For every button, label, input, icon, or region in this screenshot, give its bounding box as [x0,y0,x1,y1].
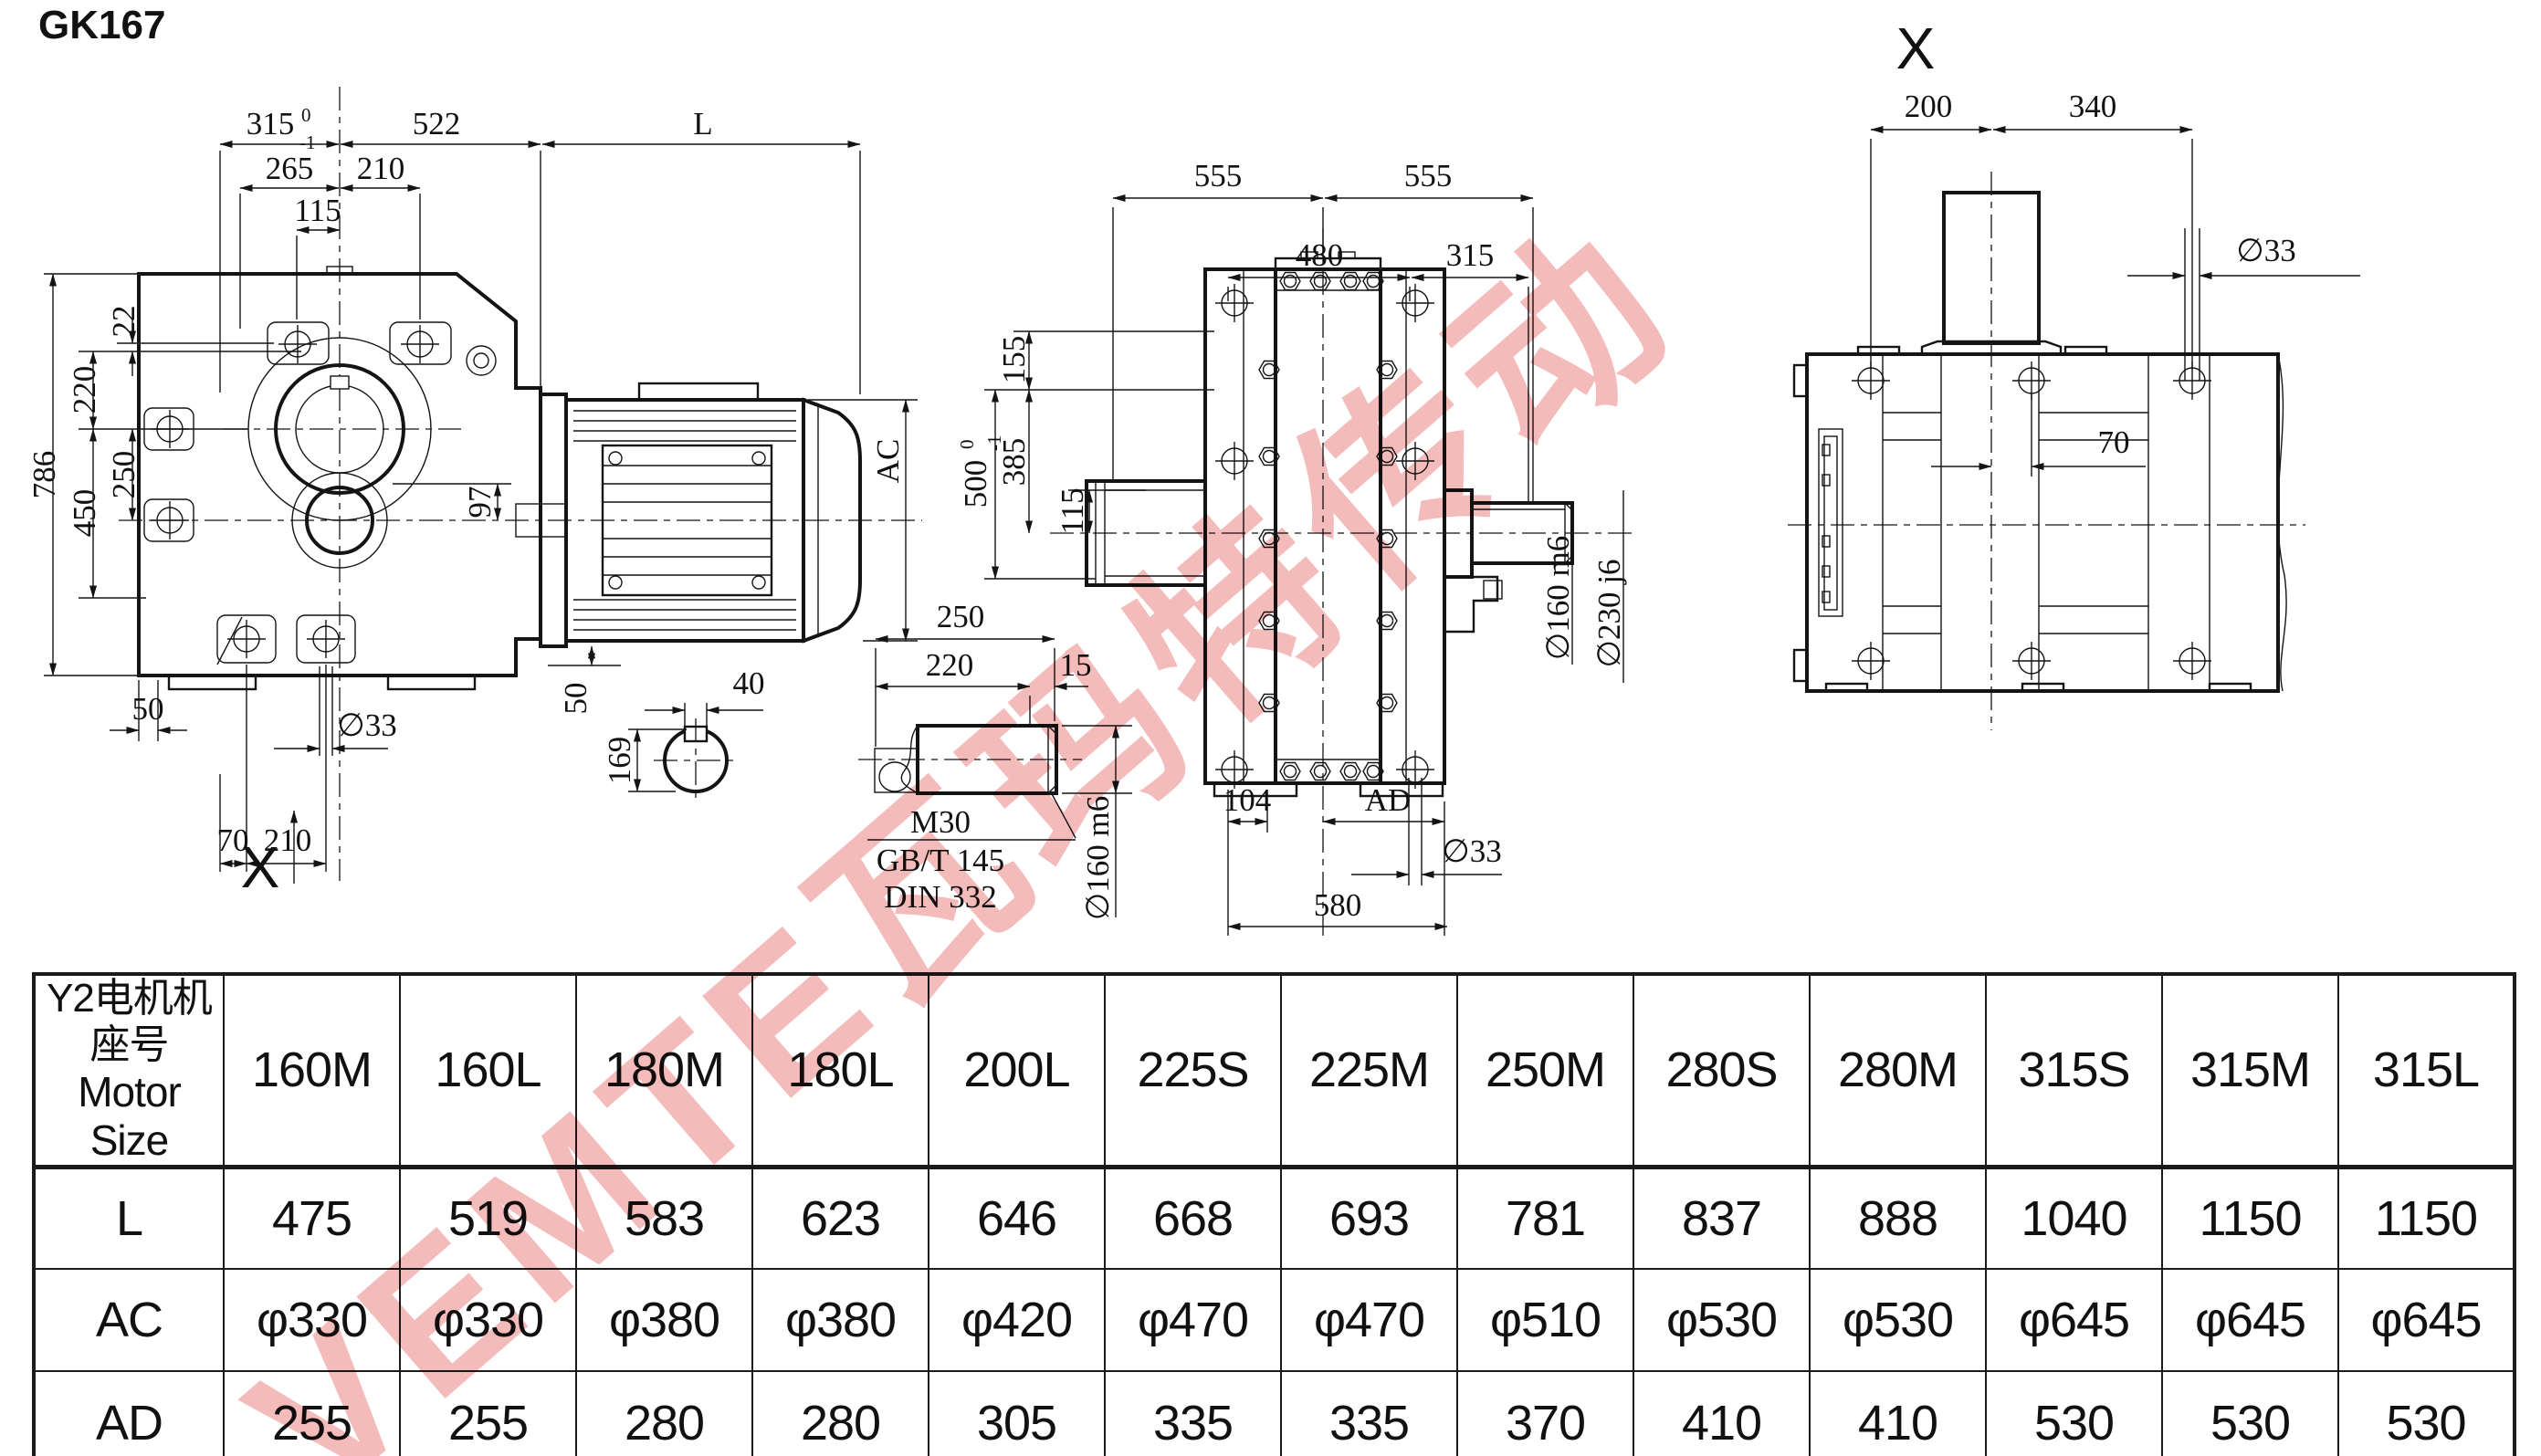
table-row-L: L 475 519 583 623 646 668 693 781 837 88… [34,1167,2515,1269]
AD-180M: 280 [576,1371,752,1456]
note-din332: DIN 332 [884,879,996,915]
L-160L: 519 [400,1167,576,1269]
dim-AC: AC [870,439,906,484]
dim-340: 340 [2069,89,2117,124]
AC-280M: φ530 [1810,1269,1986,1371]
dim-d33-x: ∅33 [2236,233,2296,268]
table-row-AD: AD 255 255 280 280 305 335 335 370 410 4… [34,1371,2515,1456]
col-280M: 280M [1810,974,1986,1167]
dim-555-left: 555 [1194,158,1243,194]
L-315M: 1150 [2162,1167,2338,1269]
AD-225M: 335 [1281,1371,1457,1456]
dim-97: 97 [462,487,498,519]
col-250M: 250M [1457,974,1633,1167]
col-180M: 180M [576,974,752,1167]
front-view: 555 555 480 315 155 385 115 500 0 -1 [956,158,1634,936]
AC-225S: φ470 [1105,1269,1281,1371]
dim-L: L [693,106,712,141]
dim-500-tol-sub: -1 [983,435,1005,452]
AC-180M: φ380 [576,1269,752,1371]
dim-22: 22 [106,306,142,338]
shaft-detail: 40 169 250 220 15 [602,599,1132,920]
side-view: 315 0 -1 522 L 265 210 115 786 220 22 [26,87,922,900]
L-200L: 646 [929,1167,1105,1269]
dim-786: 786 [26,451,62,499]
AC-160M: φ330 [224,1269,400,1371]
dim-115: 115 [294,193,341,228]
header-cn: Y2电机机座号 [36,976,223,1068]
note-m30: M30 [910,804,971,840]
L-160M: 475 [224,1167,400,1269]
dim-220: 220 [67,366,102,414]
table-header-row: Y2电机机座号 Motor Size 160M 160L 180M 180L 2… [34,974,2515,1167]
col-315M: 315M [2162,974,2338,1167]
dim-115-front: 115 [1055,487,1090,534]
dim-580: 580 [1314,887,1362,923]
L-225S: 668 [1105,1167,1281,1269]
dim-15: 15 [1060,647,1092,683]
dim-40: 40 [733,665,765,701]
col-315L: 315L [2338,974,2515,1167]
front-dims-bottom: 104 AD ∅33 580 [1223,778,1502,936]
side-dims-top: 315 0 -1 522 L 265 210 115 [220,104,860,394]
shaft-section-dims: 40 169 [602,665,765,791]
oil-plug-icon [467,346,496,375]
motor-size-header: Y2电机机座号 Motor Size [34,974,224,1167]
AD-160M: 255 [224,1371,400,1456]
dim-220-shaft: 220 [926,647,974,683]
dim-315-tol-sup: 0 [301,104,311,126]
side-dims-bottom: 50 70 210 ∅33 50 [110,646,621,872]
AD-200L: 305 [929,1371,1105,1456]
note-gbt145: GB/T 145 [877,843,1004,878]
dim-d160-shaft: ∅160 m6 [1080,796,1116,920]
AC-250M: φ510 [1457,1269,1633,1371]
x-view-marker: X [241,834,280,900]
x-view: X [1788,16,2360,730]
shaft-section [654,718,738,802]
dim-315-front: 315 [1446,237,1495,273]
x-view-label: X [1896,16,1936,81]
AD-315S: 530 [1986,1371,2162,1456]
dim-70-x: 70 [2098,424,2130,460]
dim-210-top: 210 [357,151,405,186]
L-180L: 623 [752,1167,929,1269]
col-225S: 225S [1105,974,1281,1167]
AD-180L: 280 [752,1371,929,1456]
dim-250-shaft: 250 [937,599,985,634]
col-200L: 200L [929,974,1105,1167]
dim-d160-front: ∅160 m6 [1540,536,1576,660]
drawing-page: GK167 [0,0,2541,1456]
dim-50-left: 50 [132,691,164,727]
header-en: Motor Size [36,1068,223,1165]
shaft-end [858,726,1082,793]
front-housing [1205,269,1444,783]
col-280S: 280S [1633,974,1810,1167]
dim-50-right: 50 [558,683,593,715]
col-160L: 160L [400,974,576,1167]
L-250M: 781 [1457,1167,1633,1269]
front-dims-right: ∅160 m6 ∅230 j6 [1540,490,1627,683]
L-225M: 693 [1281,1167,1457,1269]
col-315S: 315S [1986,974,2162,1167]
dim-250: 250 [106,451,142,499]
dim-200: 200 [1905,89,1953,124]
motor-size-table: Y2电机机座号 Motor Size 160M 160L 180M 180L 2… [32,972,2516,1456]
AD-315M: 530 [2162,1371,2338,1456]
AC-315M: φ645 [2162,1269,2338,1371]
dim-555-right: 555 [1404,158,1453,194]
dim-155: 155 [996,336,1032,384]
dim-d230-front: ∅230 j6 [1591,560,1627,668]
L-180M: 583 [576,1167,752,1269]
AC-160L: φ330 [400,1269,576,1371]
table-row-AC: AC φ330 φ330 φ380 φ380 φ420 φ470 φ470 φ5… [34,1269,2515,1371]
AD-250M: 370 [1457,1371,1633,1456]
dim-500-tol-sup: 0 [956,440,978,450]
dim-450: 450 [67,489,102,538]
x-housing [1807,354,2278,691]
AD-160L: 255 [400,1371,576,1456]
L-280S: 837 [1633,1167,1810,1269]
AC-225M: φ470 [1281,1269,1457,1371]
dim-104: 104 [1223,782,1272,818]
AC-315L: φ645 [2338,1269,2515,1371]
AC-315S: φ645 [1986,1269,2162,1371]
L-280M: 888 [1810,1167,1986,1269]
AD-225S: 335 [1105,1371,1281,1456]
col-160M: 160M [224,974,400,1167]
AD-315L: 530 [2338,1371,2515,1456]
dim-480: 480 [1296,237,1344,273]
side-strip [1819,429,1843,616]
L-315S: 1040 [1986,1167,2162,1269]
dim-d33-front: ∅33 [1442,833,1502,869]
dim-265: 265 [266,151,314,186]
dim-d33: ∅33 [337,707,397,743]
dim-AD: AD [1365,782,1412,818]
row-label-AC: AC [34,1269,224,1371]
row-label-L: L [34,1167,224,1269]
drawing-title: GK167 [38,3,165,47]
col-225M: 225M [1281,974,1457,1167]
col-180L: 180L [752,974,929,1167]
AD-280S: 410 [1633,1371,1810,1456]
dim-315: 315 [247,106,295,141]
row-label-AD: AD [34,1371,224,1456]
motor [516,383,860,646]
dim-500: 500 [958,460,993,508]
dim-169: 169 [602,737,637,785]
AC-200L: φ420 [929,1269,1105,1371]
AC-180L: φ380 [752,1269,929,1371]
AD-280M: 410 [1810,1371,1986,1456]
dim-522: 522 [413,106,461,141]
AC-280S: φ530 [1633,1269,1810,1371]
L-315L: 1150 [2338,1167,2515,1269]
